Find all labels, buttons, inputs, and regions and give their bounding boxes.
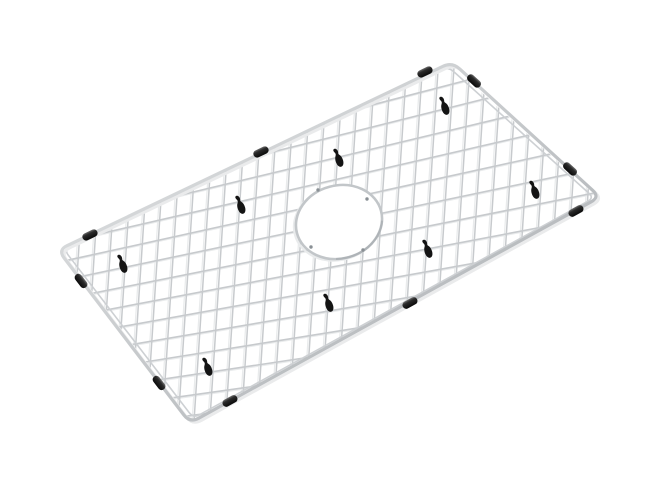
sink-grid-illustration (0, 0, 658, 482)
rubber-foot (439, 96, 450, 116)
drain-ring-joint (309, 245, 312, 248)
drain-opening (286, 175, 391, 270)
drain-ring (288, 175, 391, 268)
drain-ring-joint (361, 248, 364, 251)
drain-ring-joint (365, 197, 368, 200)
drain-ring-joint (316, 188, 319, 191)
product-photo (0, 0, 658, 482)
